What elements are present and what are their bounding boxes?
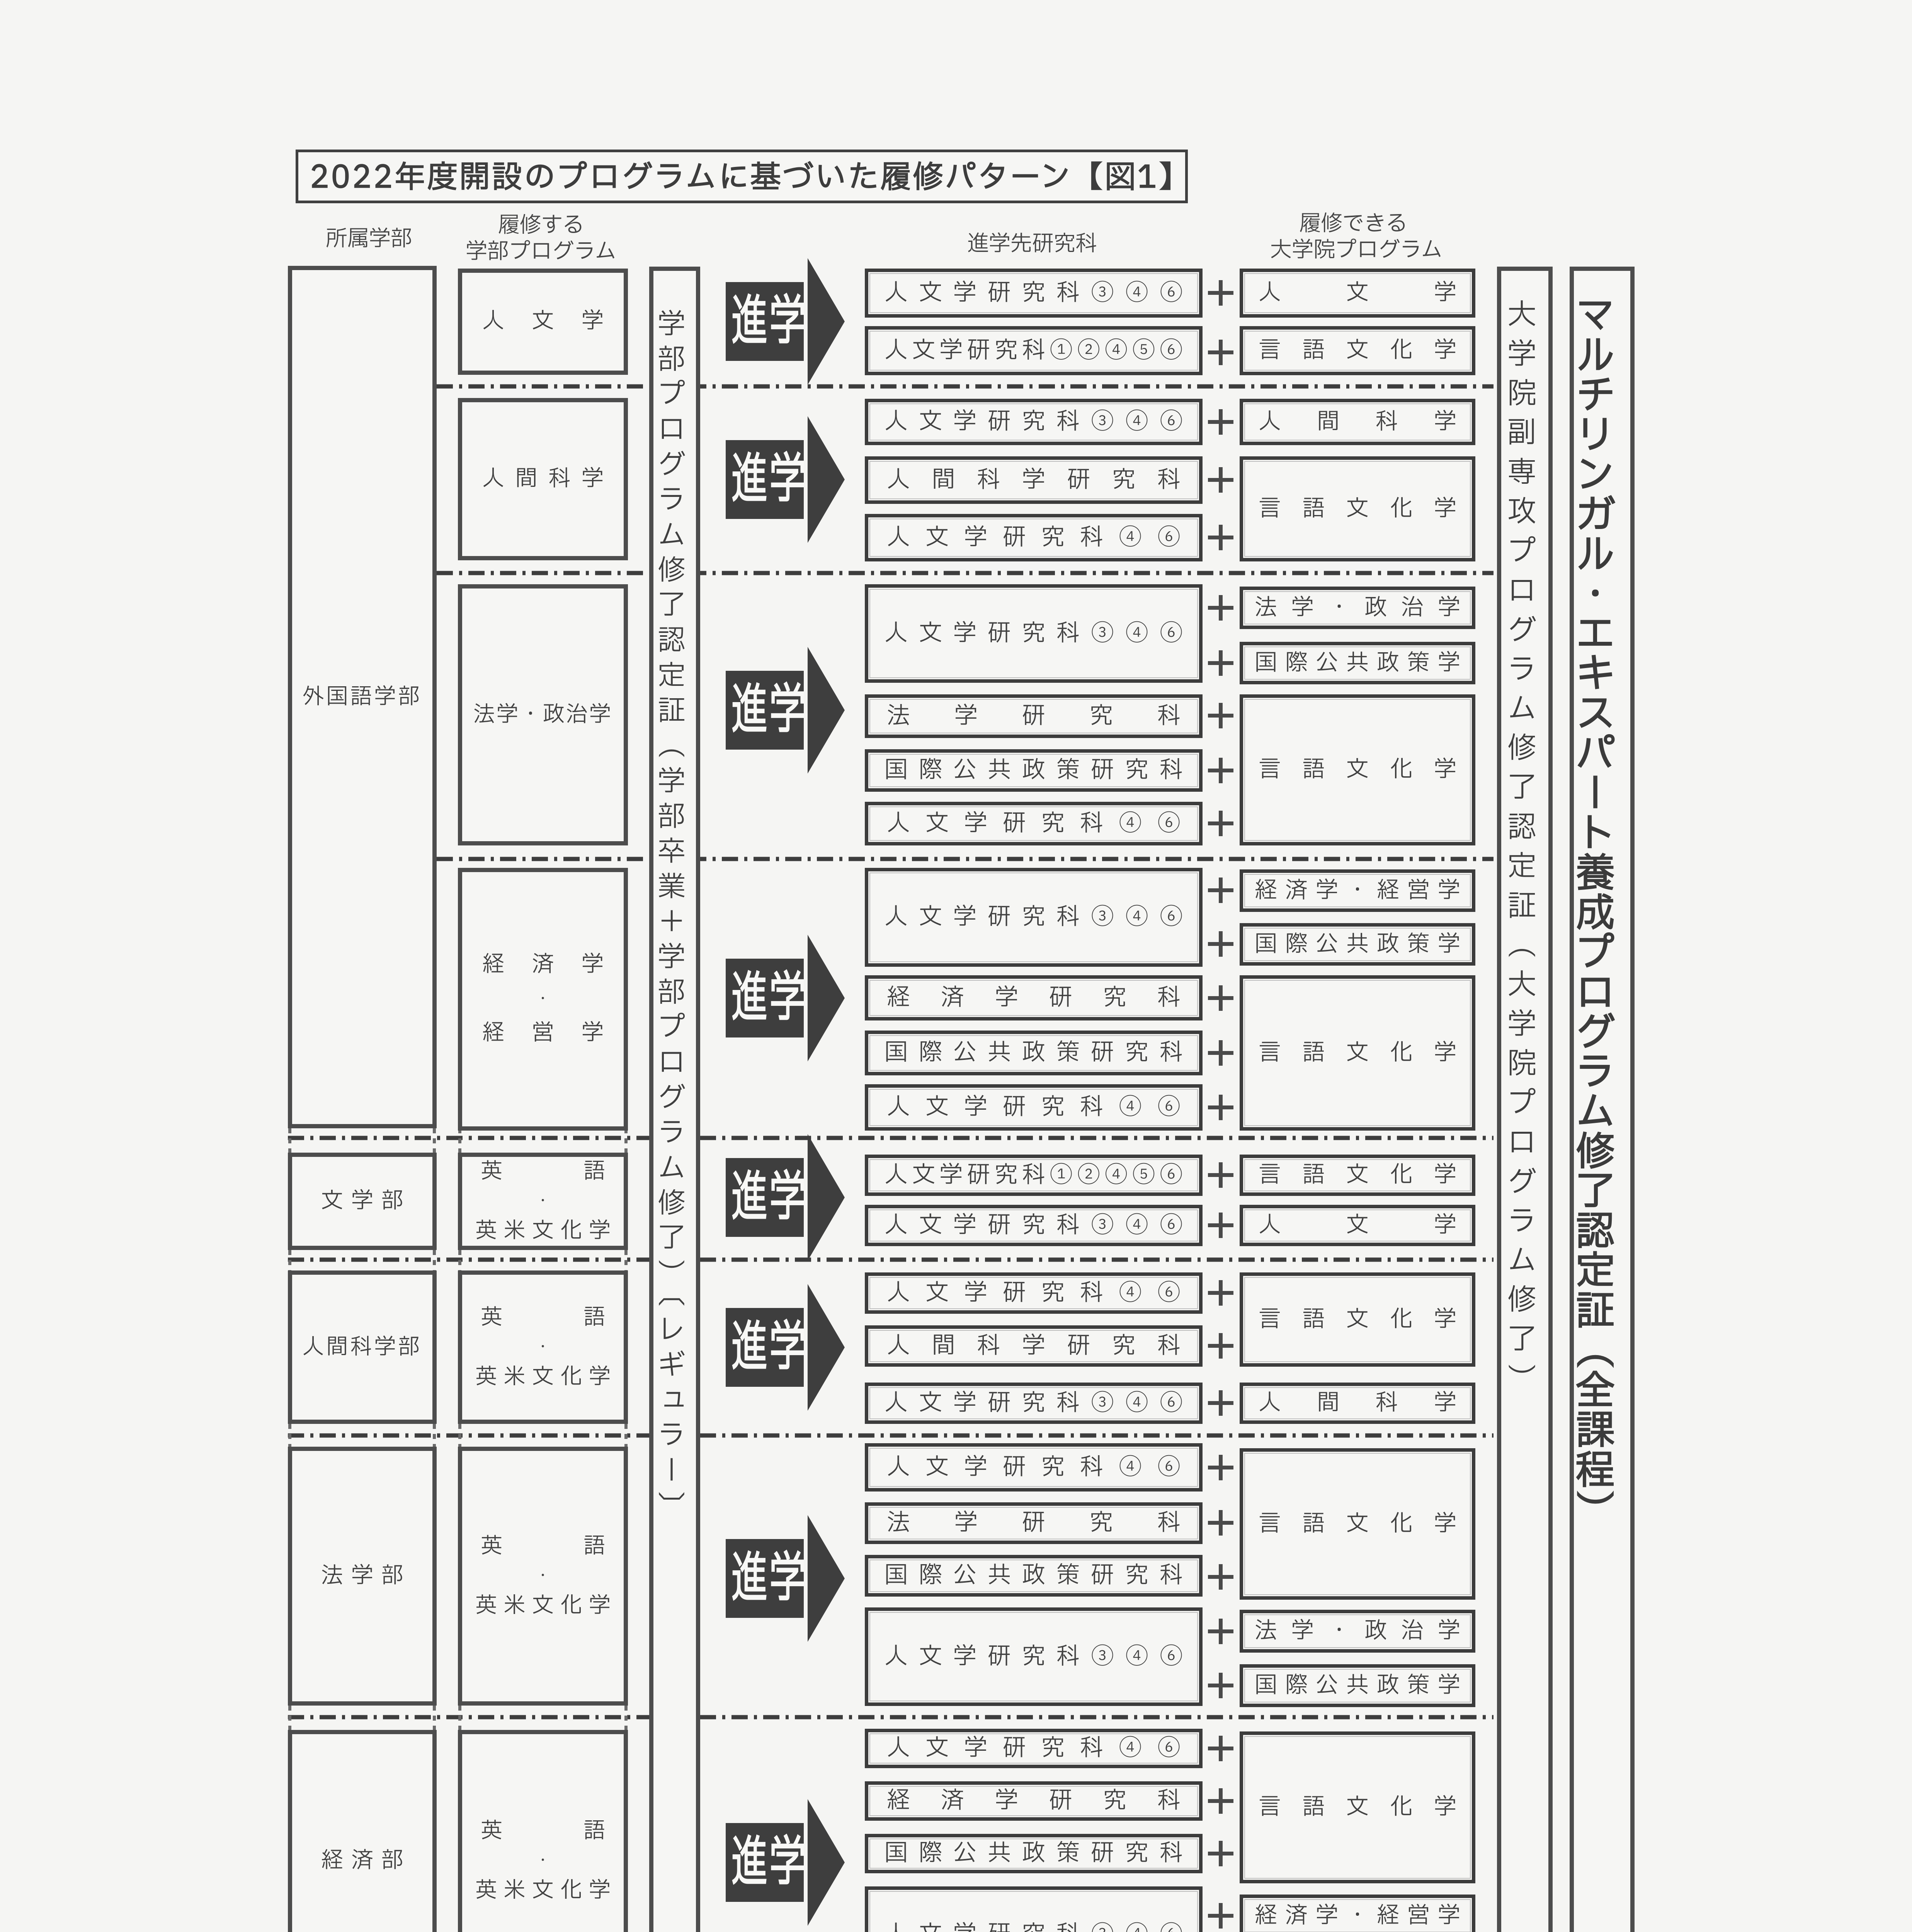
svg-text:進学: 進学 bbox=[731, 1159, 808, 1239]
svg-text:進学: 進学 bbox=[731, 283, 808, 363]
svg-text:進学: 進学 bbox=[731, 441, 808, 521]
svg-text:進学: 進学 bbox=[731, 959, 808, 1039]
svg-text:進学: 進学 bbox=[731, 1540, 808, 1620]
svg-text:進学: 進学 bbox=[731, 1824, 808, 1904]
svg-text:進学: 進学 bbox=[731, 1309, 808, 1389]
svg-text:進学: 進学 bbox=[731, 672, 808, 752]
